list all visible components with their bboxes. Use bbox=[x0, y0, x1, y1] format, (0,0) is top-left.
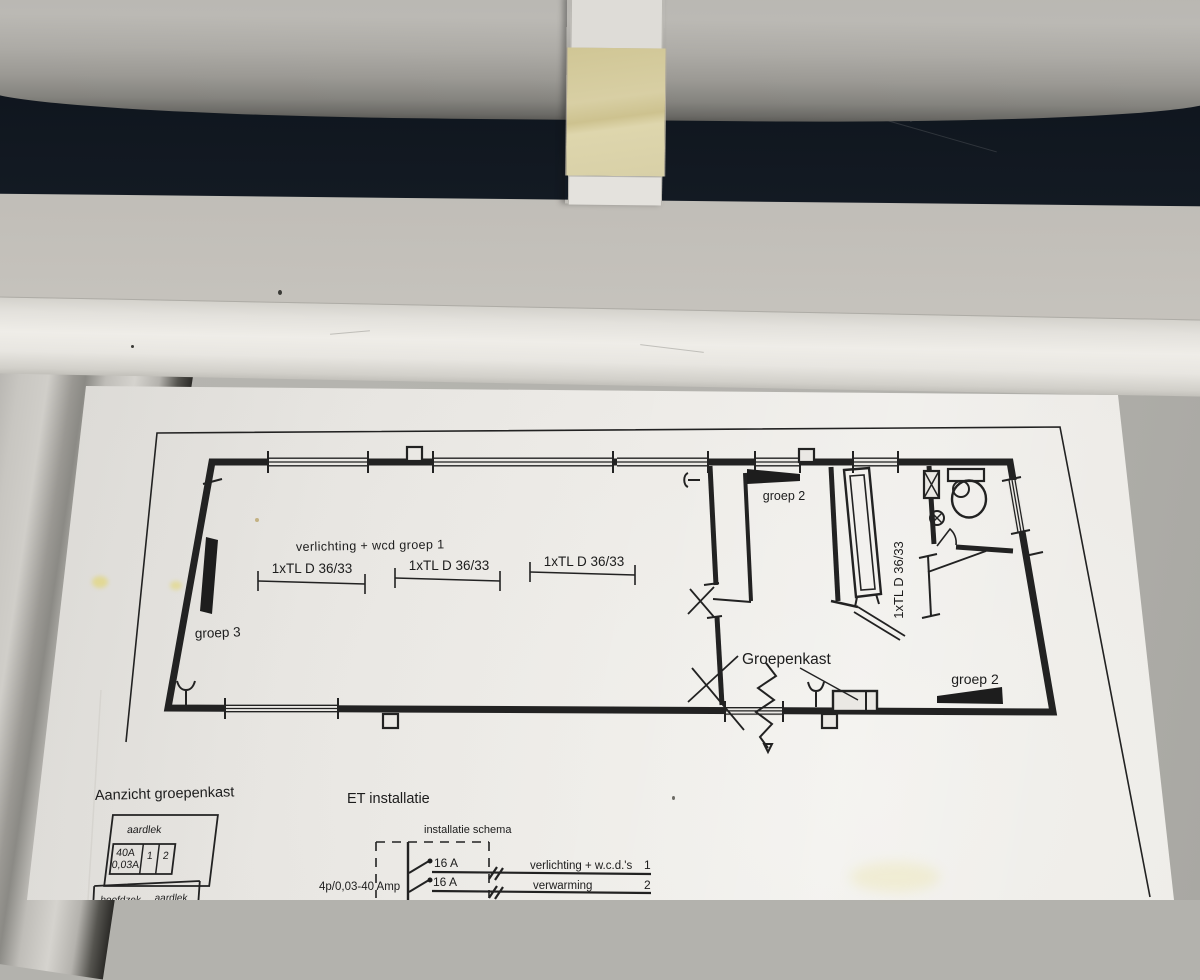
circuit2-rating: 16 A bbox=[433, 875, 457, 889]
wall-vent bbox=[799, 449, 814, 462]
sink-icon bbox=[948, 469, 984, 481]
groep2-top-marker bbox=[747, 469, 800, 484]
wall-vent bbox=[383, 714, 398, 728]
electrical-plan-drawing: verlichting + wcd groep 1 1xTL D 36/33 1… bbox=[0, 0, 1200, 900]
wall-vent bbox=[407, 447, 422, 461]
circuit1-label: verlichting + w.c.d.'s bbox=[530, 860, 632, 872]
window-segment-right bbox=[1002, 477, 1030, 534]
groep3-label: groep 3 bbox=[195, 624, 241, 641]
tl-label-vertical: 1xTL D 36/33 bbox=[891, 541, 906, 619]
rating-trip: 0,03A bbox=[111, 859, 140, 871]
circuit1-rating: 16 A bbox=[434, 856, 458, 870]
partial-label-right: aardlek bbox=[154, 893, 189, 900]
schema-title: installatie schema bbox=[424, 824, 512, 836]
door-swing bbox=[688, 656, 744, 730]
area-group-label: verlichting + wcd groep 1 bbox=[296, 537, 445, 554]
door-leaf bbox=[200, 537, 218, 614]
groep2-right-label: groep 2 bbox=[951, 671, 999, 687]
et-title: ET installatie bbox=[347, 791, 430, 807]
photo-of-electrical-plan: { "floor_plan": { "area_label": "verlich… bbox=[0, 0, 1200, 900]
groep2-top-label: groep 2 bbox=[763, 489, 805, 503]
group-number-2: 2 bbox=[162, 850, 169, 862]
tl-label-2: 1xTL D 36/33 bbox=[409, 558, 490, 573]
door-swing bbox=[688, 587, 714, 617]
circuit2-number: 2 bbox=[644, 878, 651, 892]
circuit1-number: 1 bbox=[644, 858, 651, 872]
aardlek-label: aardlek bbox=[126, 824, 163, 836]
tall-fixture bbox=[844, 468, 881, 607]
earth-symbol bbox=[177, 681, 195, 706]
groep2-right-marker bbox=[937, 687, 1003, 704]
main-switch-label: 4p/0,03-40 Amp bbox=[319, 881, 400, 893]
building-outline bbox=[168, 462, 1053, 712]
partial-label-left: hoofdzek bbox=[100, 895, 143, 900]
wall-vent bbox=[822, 714, 837, 728]
panel-view-title: Aanzicht groepenkast bbox=[95, 784, 235, 804]
door-swing bbox=[937, 529, 956, 546]
tl-label-3: 1xTL D 36/33 bbox=[544, 554, 625, 569]
groepenkast-label: Groepenkast bbox=[742, 651, 831, 668]
tl-dimension-vertical bbox=[919, 554, 940, 618]
tl-label-1: 1xTL D 36/33 bbox=[272, 561, 353, 576]
bathroom bbox=[924, 466, 1043, 572]
circuit2-label: verwarming bbox=[533, 880, 592, 892]
wall-light-icon bbox=[684, 473, 700, 487]
rating-amps: 40A bbox=[116, 847, 136, 859]
group-number-1: 1 bbox=[146, 850, 153, 862]
corridor-wall-left bbox=[688, 466, 744, 730]
sheet-border bbox=[126, 427, 1150, 897]
light-point-icon bbox=[808, 682, 824, 707]
